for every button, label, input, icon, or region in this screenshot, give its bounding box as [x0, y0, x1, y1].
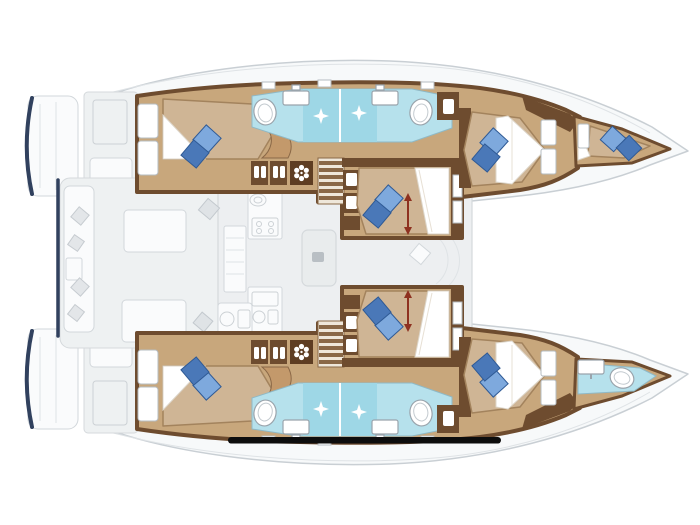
bow-hatch: [578, 124, 589, 148]
hull-window: [541, 120, 556, 145]
hull-window: [138, 104, 158, 138]
hull-window: [541, 149, 556, 174]
sink-icon: [372, 91, 398, 105]
sink-icon: [283, 91, 309, 105]
hull-window: [138, 141, 158, 175]
corridor-units: [251, 161, 313, 185]
window-tick: [262, 82, 275, 89]
wardrobe-door: [261, 166, 266, 178]
galley-cabinet: [224, 226, 246, 292]
wardrobe-door: [280, 166, 285, 178]
floor-plan-svg: [0, 0, 700, 525]
cockpit-table: [124, 210, 186, 252]
scale-bar: [228, 437, 501, 444]
nightstand: [343, 216, 360, 230]
sink-faucet: [292, 85, 300, 90]
nightstand-face: [346, 196, 357, 209]
vanity-basin-icon: [443, 99, 454, 114]
sink-faucet: [376, 85, 384, 90]
bench-tray: [66, 258, 82, 280]
hull-window: [453, 201, 462, 223]
catamaran-floor-plan: [0, 0, 700, 525]
outdoor-galley: [218, 303, 252, 335]
sink-icon: [578, 360, 604, 374]
wardrobe-door: [273, 166, 278, 178]
galley-counter: [248, 287, 282, 335]
nightstand-face: [346, 173, 357, 186]
cabin-wall: [342, 158, 462, 167]
hull-bathrooms: [252, 85, 459, 142]
window-tick: [421, 82, 434, 89]
wardrobe-door: [254, 166, 259, 178]
companionway-stairs: [318, 158, 344, 204]
salon-table-item: [312, 252, 324, 262]
window-tick: [318, 80, 331, 87]
